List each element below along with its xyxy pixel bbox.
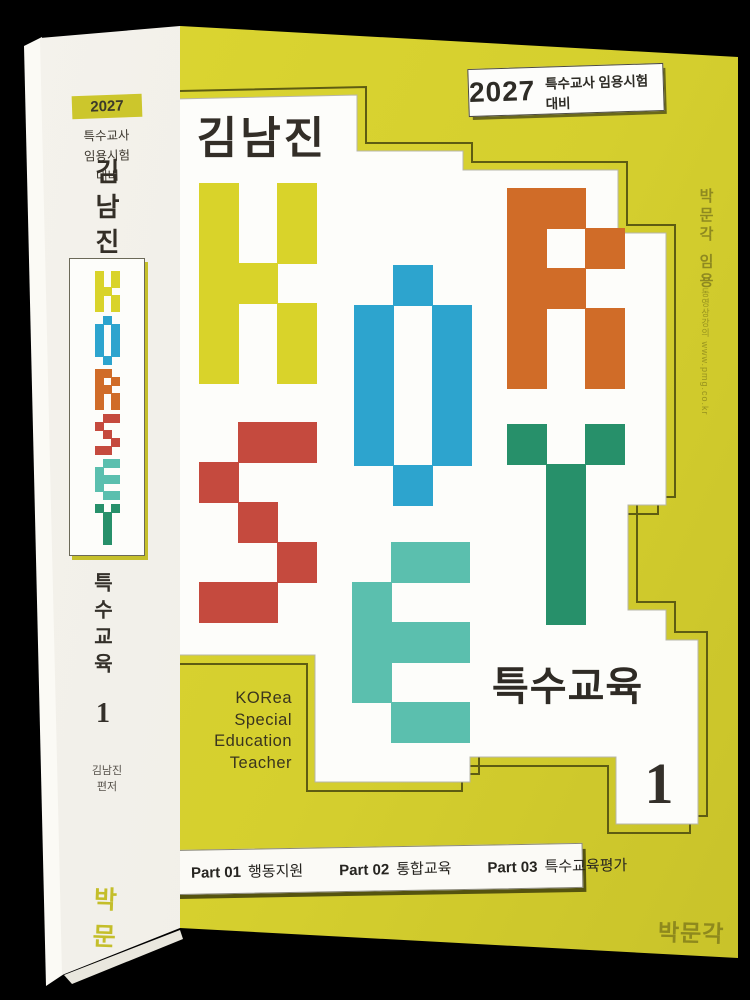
korset-pixel-E [111,475,120,484]
korset-pixel-E [111,459,120,468]
korset-pixel-O [354,385,394,426]
part-3-label: Part 03 [487,859,537,877]
korset-pixel-K [199,303,239,344]
spine-author-name: 김남진 [88,158,125,263]
korset-pixel-K [277,223,317,264]
spine-credit-line-1: 김남진 [70,763,144,779]
korset-pixel-O [354,345,394,386]
korset-pixel-S [238,582,278,623]
spine-credit-line-2: 편저 [70,779,144,795]
korset-pixel-K [238,263,278,304]
spine-volume-number: 1 [96,698,110,730]
korset-pixel-R [111,401,120,410]
korset-pixel-E [352,622,392,663]
spine-series-title: 특수교육 [87,572,116,680]
side-vertical-text: 박문각 임용 [695,188,716,291]
part-item-1: Part 01행동지원 [191,860,304,883]
korset-pixel-R [546,188,586,229]
korset-pixel-R [507,268,547,309]
korset-pixel-E [352,582,392,623]
korset-pixel-R [585,308,625,349]
korset-pixel-R [546,268,586,309]
korset-pixel-R [95,401,104,410]
korset-pixel-K [277,343,317,384]
part-1-label: Part 01 [191,864,241,882]
korset-pixel-K [199,343,239,384]
korset-pixel-K [199,263,239,304]
spine-author-credit: 김남진 편저 [70,763,144,795]
korset-pixel-R [585,228,625,269]
part-item-2: Part 02통합교육 [339,857,452,880]
korset-pixel-S [277,422,317,463]
korset-pixel-O [432,305,472,346]
korset-pixel-K [199,183,239,224]
korset-pixel-K [95,303,104,312]
part-3-title: 특수교육평가 [544,857,627,875]
korset-pixel-T [103,536,112,545]
korset-pixel-T [546,464,586,505]
korset-pixel-S [199,582,239,623]
part-2-title: 통합교육 [396,860,451,878]
part-1-title: 행동지원 [248,863,303,881]
korset-pixel-K [111,279,120,288]
korset-pixel-R [507,308,547,349]
korset-pixel-T [507,424,547,465]
korset-pixel-T [585,424,625,465]
korset-pixel-R [507,228,547,269]
korset-pixel-O [354,425,394,466]
korset-pixel-T [111,504,120,513]
korset-pixel-S [111,438,120,447]
korset-pixel-S [238,502,278,543]
korset-pixel-R [111,377,120,386]
korset-pixel-E [111,491,120,500]
korset-pixel-T [546,584,586,625]
korset-pixel-E [391,622,431,663]
korset-pixel-O [103,356,112,365]
korset-pixel-K [277,303,317,344]
korset-pixel-S [103,446,112,455]
part-item-3: Part 03특수교육평가 [487,854,627,877]
korset-pixel-R [507,348,547,389]
book-cover-scene: 2027 특수교사 임용시험 대비 김남진 특수교육 1 김남진 편저 박문각 … [0,0,750,1000]
korset-pixel-K [199,223,239,264]
korset-pixel-S [111,414,120,423]
korset-pixel-O [393,265,433,306]
korset-pixel-S [199,462,239,503]
korset-pixel-R [585,348,625,389]
korset-pixel-R [507,188,547,229]
cover-volume-number: 1 [618,740,700,824]
spine-year-badge: 2027 [72,94,143,119]
korset-pixel-O [111,348,120,357]
korset-pixel-E [352,662,392,703]
part-2-label: Part 02 [339,861,389,879]
korset-pixel-S [238,422,278,463]
side-url-text: 동영상강의 www.pmg.co.kr [699,288,712,416]
korset-pixel-E [391,702,431,743]
spine-publisher-name: 박문각 [82,885,122,997]
publisher-logo: 박문각 [658,913,725,949]
korset-pixel-O [432,385,472,426]
cover-series-title: 특수교육 [492,654,662,712]
korset-pixel-O [432,425,472,466]
korset-pixel-O [432,345,472,386]
korset-pixel-K [111,303,120,312]
spine-subtitle-line-1: 특수교사 [61,125,151,147]
korset-pixel-K [277,183,317,224]
spine-korset-logo [69,258,145,556]
korset-pixel-O [393,465,433,506]
korset-pixel-E [430,622,470,663]
korset-pixel-T [546,544,586,585]
korset-pixel-S [277,542,317,583]
korset-pixel-E [430,702,470,743]
korset-pixel-T [546,504,586,545]
korset-pixel-E [391,542,431,583]
korset-pixel-E [430,542,470,583]
korset-pixel-O [354,305,394,346]
